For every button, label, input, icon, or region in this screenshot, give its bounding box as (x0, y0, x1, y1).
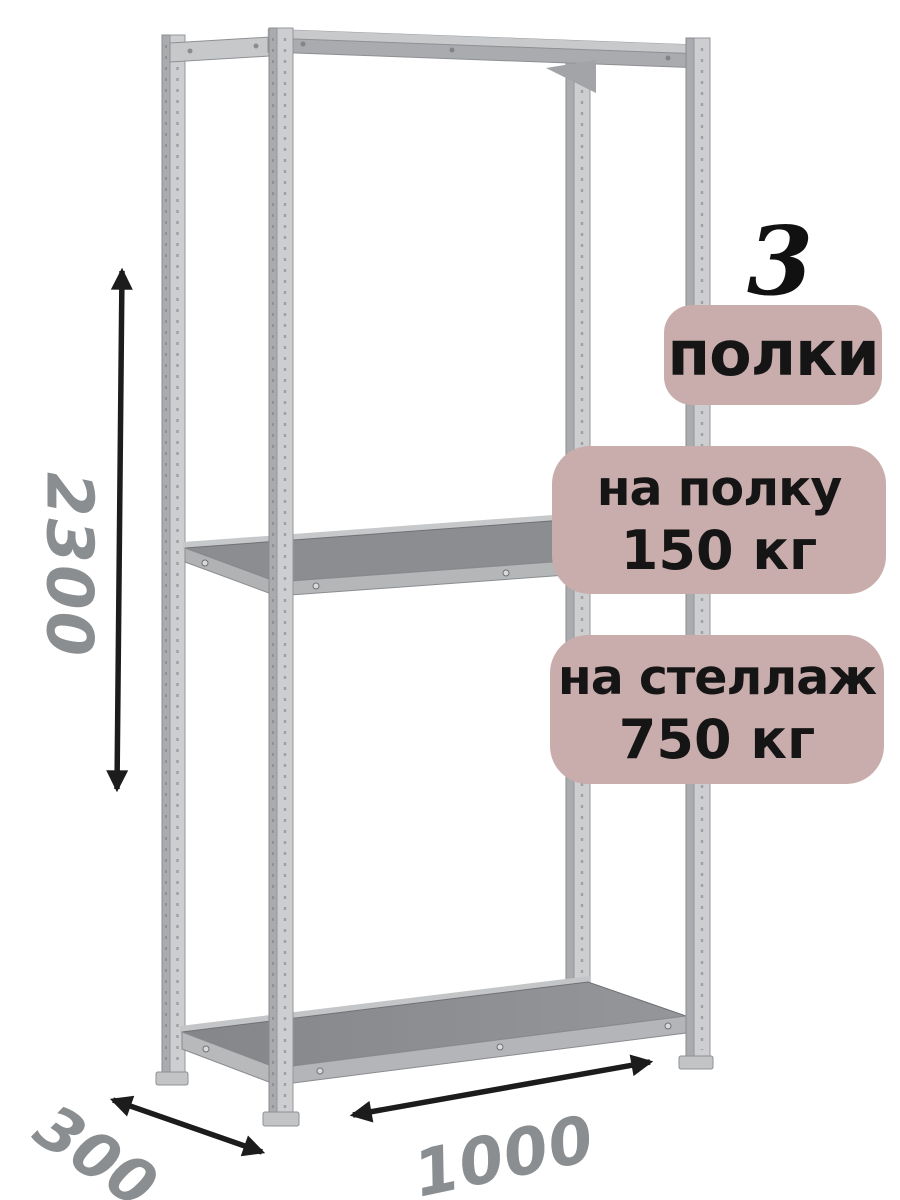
shelving-rack-illustration: 2300 300 1000 (0, 0, 900, 1200)
height-dimension-arrow (117, 271, 122, 789)
shelves-count-badge-label: полки (667, 317, 878, 390)
per-shelf-load-line1: на полку (552, 459, 886, 519)
shelf-top (268, 29, 704, 93)
per-shelf-load-badge: на полку 150 кг (552, 446, 886, 594)
shelves-count-badge: полки (664, 305, 882, 405)
per-shelf-load-line2: 150 кг (552, 519, 886, 583)
depth-dimension-label: 300 (22, 1090, 170, 1200)
width-dimension-label: 1000 (408, 1102, 602, 1200)
per-rack-load-badge: на стеллаж 750 кг (550, 635, 884, 784)
per-rack-load-line2: 750 кг (550, 708, 884, 772)
per-rack-load-line1: на стеллаж (550, 648, 884, 708)
product-image: 2300 300 1000 3 полки на полку 150 кг на… (0, 0, 900, 1200)
rack-post-foot (156, 1072, 188, 1085)
rack-post-back-left (162, 35, 185, 1077)
shelves-count-value: 3 (710, 204, 850, 319)
height-dimension-label: 2300 (32, 472, 106, 658)
